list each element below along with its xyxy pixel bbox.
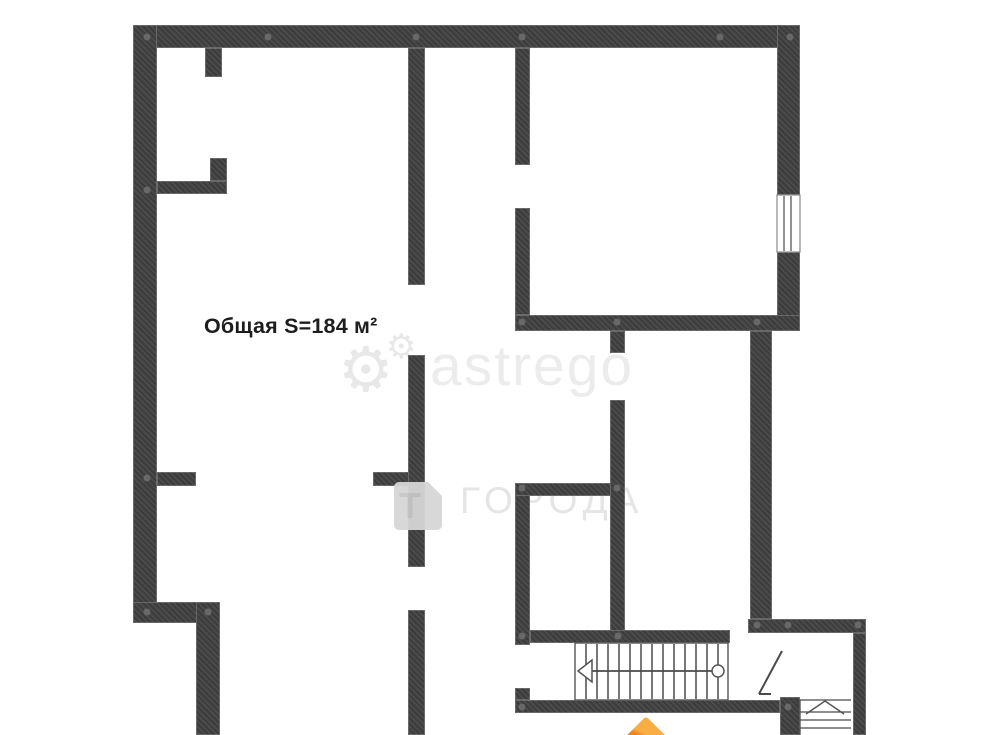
door-swing — [759, 651, 782, 694]
stair-start-circle — [712, 665, 724, 677]
window — [777, 195, 800, 252]
total-area-label: Общая S=184 м² — [204, 314, 378, 339]
watermark-logo: Т — [394, 482, 442, 530]
floorplan: ⚙ ⚙ astrego ГОРОДА Общая S=184 м² Т — [0, 0, 1000, 735]
watermark-logo-letter: Т — [399, 485, 421, 527]
linework-overlay — [0, 0, 1000, 735]
